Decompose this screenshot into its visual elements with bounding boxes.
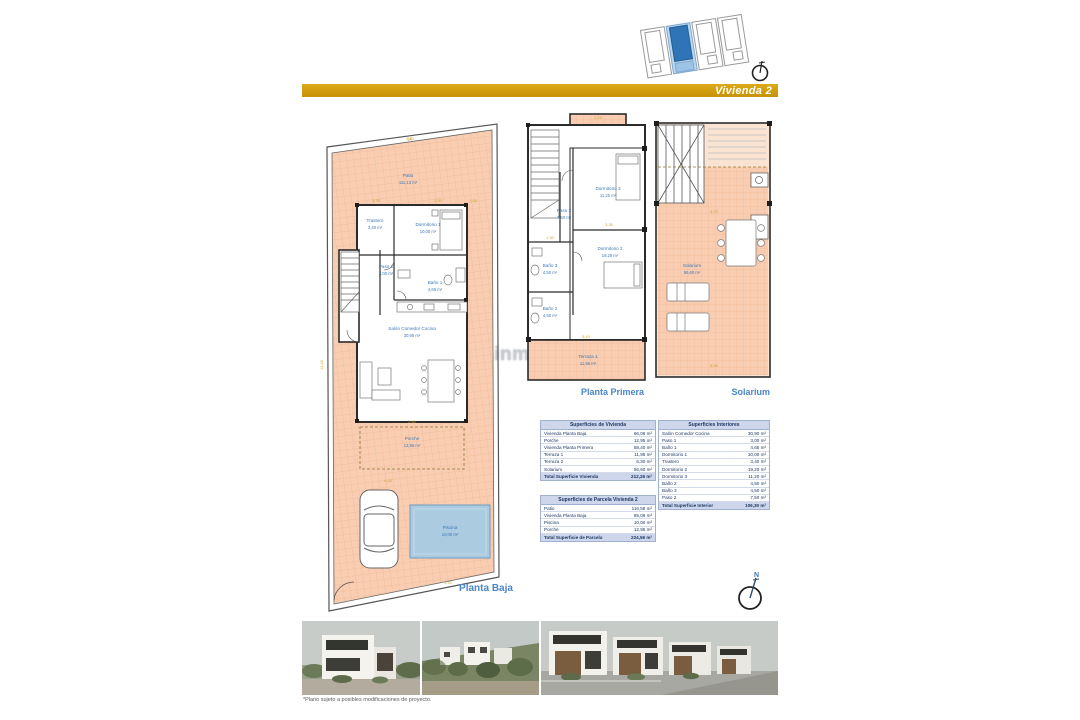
row-label: Vivienda Planta Baja: [544, 513, 586, 518]
svg-text:3,35: 3,35: [372, 199, 379, 203]
footnote-disclaimer: *Plano sujeto a posibles modificaciones …: [303, 697, 431, 703]
svg-text:4,70: 4,70: [710, 210, 717, 214]
row-label: Paso 1: [662, 438, 676, 443]
svg-text:3,40 m²: 3,40 m²: [368, 225, 383, 230]
row-label: Baño 3: [662, 488, 677, 493]
row-value: 6,30 m²: [636, 459, 652, 464]
row-label: Baño 1: [662, 445, 677, 450]
svg-text:111,13 m²: 111,13 m²: [399, 180, 418, 185]
row-label: Trastero: [662, 459, 679, 464]
table-row: Piscina10,00 m²: [541, 519, 655, 526]
total-label: Total Superficie de Parcela: [544, 535, 602, 540]
row-label: Terraza 2: [544, 459, 563, 464]
svg-text:11,95 m²: 11,95 m²: [580, 361, 597, 366]
row-value: 4,50 m²: [750, 488, 766, 493]
row-label: Salón Comedor Cocina: [662, 431, 710, 436]
table-row: Salón Comedor Cocina30,90 m²: [659, 430, 769, 437]
row-label: Dormitorio 1: [662, 452, 687, 457]
row-value: 58,40 m²: [634, 445, 652, 450]
row-label: Baño 2: [662, 481, 677, 486]
svg-text:1,05: 1,05: [469, 199, 476, 203]
table-body: Vivienda Planta Baja66,06 m²Porche12,95 …: [541, 430, 655, 473]
total-value: 224,59 m²: [631, 535, 652, 540]
photo-render-village: [422, 621, 539, 695]
svg-text:5,95: 5,95: [710, 364, 717, 368]
svg-text:Terraza 1: Terraza 1: [578, 354, 598, 359]
solarium-caption: Solarium: [706, 387, 770, 397]
svg-text:Dormitorio 3: Dormitorio 3: [595, 186, 620, 191]
total-label: Total Superficie Vivienda: [544, 474, 598, 479]
svg-text:2,60: 2,60: [408, 420, 415, 424]
svg-text:4,50 m²: 4,50 m²: [543, 270, 558, 275]
table-row: Vivienda Planta Baja85,06 m²: [541, 512, 655, 519]
svg-text:1,90: 1,90: [546, 236, 553, 240]
svg-text:Paso 2: Paso 2: [557, 208, 572, 213]
svg-text:Trastero: Trastero: [367, 218, 384, 223]
svg-text:Baño 2: Baño 2: [543, 306, 558, 311]
table-body: Patio116,58 m²Vivienda Planta Baja85,06 …: [541, 505, 655, 534]
svg-text:Baño 1: Baño 1: [428, 280, 443, 285]
svg-text:4,50 m²: 4,50 m²: [543, 313, 558, 318]
solarium-plan: Solarium 56,60 m² 4,70 5,95: [652, 115, 774, 387]
page-title: Vivienda 2: [715, 85, 778, 97]
row-label: Vivienda Planta Baja: [544, 431, 586, 436]
row-value: 56,60 m²: [634, 467, 652, 472]
svg-text:30,90 m²: 30,90 m²: [404, 333, 421, 338]
svg-text:12,40: 12,40: [320, 360, 324, 370]
svg-text:5,10: 5,10: [582, 335, 589, 339]
photo-render-villa-1: [302, 621, 420, 695]
svg-text:4,65 m²: 4,65 m²: [428, 287, 443, 292]
svg-text:3,00 m²: 3,00 m²: [379, 271, 394, 276]
svg-text:5,10: 5,10: [406, 137, 413, 141]
row-label: Paso 2: [662, 495, 676, 500]
row-value: 85,06 m²: [634, 513, 652, 518]
svg-text:Porche: Porche: [405, 436, 420, 441]
table-row: Porche12,95 m²: [541, 527, 655, 534]
svg-text:Paso 1: Paso 1: [379, 264, 394, 269]
table-row: Baño 34,50 m²: [659, 488, 769, 495]
svg-text:10,00 m²: 10,00 m²: [442, 532, 459, 537]
table-title: Superficies de Parcela Vivienda 2: [541, 496, 655, 505]
table-title: Superficies de Vivienda: [541, 421, 655, 430]
svg-text:10,00 m²: 10,00 m²: [420, 229, 437, 234]
row-value: 19,20 m²: [748, 467, 766, 472]
row-label: Solarium: [544, 467, 562, 472]
table-row: Terraza 26,30 m²: [541, 459, 655, 466]
svg-text:Salón Comedor Cocina: Salón Comedor Cocina: [388, 326, 436, 331]
table-total-row: Total Superficie de Parcela 224,59 m²: [541, 534, 655, 541]
table-superficies-parcela: Superficies de Parcela Vivienda 2 Patio1…: [540, 495, 656, 542]
svg-text:11,20 m²: 11,20 m²: [600, 193, 617, 198]
svg-text:Baño 3: Baño 3: [543, 263, 558, 268]
svg-text:Solarium: Solarium: [683, 263, 701, 268]
table-row: Paso 13,00 m²: [659, 437, 769, 444]
planta-baja-plan: Patio 111,13 m²: [298, 110, 503, 615]
table-row: Dormitorio 110,00 m²: [659, 452, 769, 459]
row-value: 11,20 m²: [748, 474, 766, 479]
row-value: 30,90 m²: [748, 431, 766, 436]
table-row: Vivienda Planta Primera58,40 m²: [541, 444, 655, 451]
row-value: 11,95 m²: [634, 452, 652, 457]
total-value: 106,30 m²: [745, 503, 766, 508]
svg-text:Dormitorio 2: Dormitorio 2: [597, 246, 622, 251]
row-value: 3,00 m²: [750, 438, 766, 443]
table-superficies-vivienda: Superficies de Vivienda Vivienda Planta …: [540, 420, 656, 481]
planta-primera-caption: Planta Primera: [575, 387, 650, 397]
row-value: 116,58 m²: [632, 506, 652, 511]
table-row: Paso 27,50 m²: [659, 495, 769, 502]
table-title: Superficies Interiores: [659, 421, 769, 430]
svg-text:Piscina: Piscina: [443, 525, 458, 530]
row-value: 10,00 m²: [634, 520, 652, 525]
planta-baja-caption: Planta Baja: [450, 583, 522, 594]
row-value: 10,00 m²: [748, 452, 766, 457]
svg-text:Dormitorio 1: Dormitorio 1: [415, 222, 440, 227]
table-row: Solarium56,60 m²: [541, 466, 655, 473]
row-value: 3,40 m²: [750, 459, 766, 464]
table-row: Terraza 111,95 m²: [541, 452, 655, 459]
svg-text:56,60 m²: 56,60 m²: [684, 270, 701, 275]
table-row: Vivienda Planta Baja66,06 m²: [541, 430, 655, 437]
table-row: Dormitorio 311,20 m²: [659, 473, 769, 480]
table-superficies-interiores: Superficies Interiores Salón Comedor Coc…: [658, 420, 770, 510]
row-label: Terraza 1: [544, 452, 563, 457]
planta-primera-plan: Terraza 2 6,30 m² Terraza 1 11,95 m²: [520, 112, 650, 384]
svg-text:19,20 m²: 19,20 m²: [602, 253, 619, 258]
unit-locator-siteplan: [636, 14, 756, 84]
svg-text:12,95 m²: 12,95 m²: [404, 443, 421, 448]
svg-text:7,50 m²: 7,50 m²: [557, 215, 572, 220]
row-value: 12,95 m²: [634, 527, 652, 532]
row-label: Piscina: [544, 520, 559, 525]
table-row: Patio116,58 m²: [541, 505, 655, 512]
table-row: Trastero3,40 m²: [659, 459, 769, 466]
row-value: 66,06 m²: [634, 431, 652, 436]
table-body: Salón Comedor Cocina30,90 m²Paso 13,00 m…: [659, 430, 769, 502]
row-value: 7,50 m²: [750, 495, 766, 500]
row-label: Vivienda Planta Primera: [544, 445, 593, 450]
row-value: 4,50 m²: [750, 481, 766, 486]
row-label: Patio: [544, 506, 554, 511]
table-row: Baño 24,50 m²: [659, 480, 769, 487]
svg-text:4,20: 4,20: [384, 479, 391, 483]
svg-text:2,30: 2,30: [434, 199, 441, 203]
table-row: Baño 14,65 m²: [659, 444, 769, 451]
table-total-row: Total Superficie Vivienda 212,26 m²: [541, 473, 655, 480]
row-label: Porche: [544, 438, 559, 443]
svg-text:N: N: [754, 572, 759, 579]
table-row: Dormitorio 219,20 m²: [659, 466, 769, 473]
north-compass-icon-top: [749, 57, 771, 83]
total-value: 212,26 m²: [631, 474, 652, 479]
svg-text:2,10: 2,10: [594, 116, 601, 120]
row-value: 4,65 m²: [750, 445, 766, 450]
photo-render-villas-row: [541, 621, 778, 695]
svg-text:Patio: Patio: [403, 173, 414, 178]
row-value: 12,95 m²: [634, 438, 652, 443]
row-label: Dormitorio 3: [662, 474, 687, 479]
row-label: Dormitorio 2: [662, 467, 687, 472]
north-compass-icon: N: [730, 570, 770, 616]
row-label: Porche: [544, 527, 559, 532]
svg-text:3,35: 3,35: [605, 223, 612, 227]
table-row: Porche12,95 m²: [541, 437, 655, 444]
total-label: Total Superficie Interior: [662, 503, 713, 508]
title-banner: Vivienda 2: [302, 84, 778, 97]
table-total-row: Total Superficie Interior 106,30 m²: [659, 502, 769, 509]
